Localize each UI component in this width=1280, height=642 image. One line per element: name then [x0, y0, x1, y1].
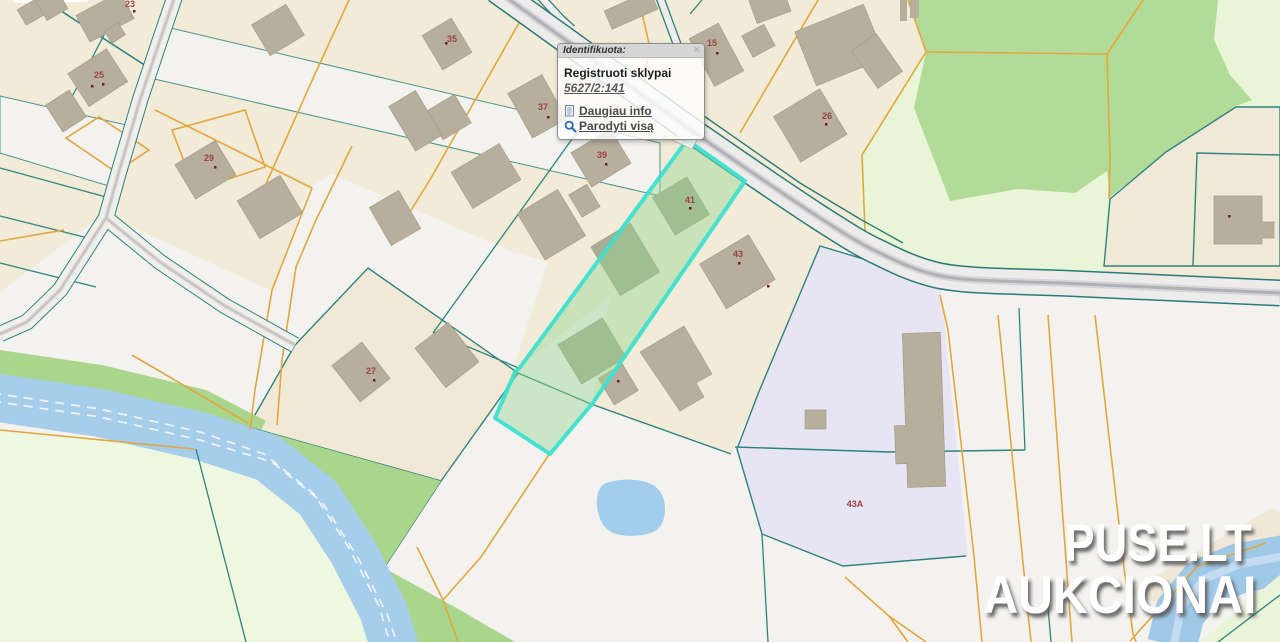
svg-text:27: 27 [366, 366, 376, 376]
svg-text:37: 37 [538, 102, 548, 112]
svg-text:26: 26 [822, 111, 832, 121]
svg-text:35: 35 [447, 34, 457, 44]
svg-text:43A: 43A [847, 499, 864, 509]
svg-text:25: 25 [94, 70, 104, 80]
svg-text:23: 23 [125, 0, 135, 9]
svg-text:43: 43 [733, 249, 743, 259]
svg-text:29: 29 [204, 153, 214, 163]
svg-text:39: 39 [597, 150, 607, 160]
svg-text:41: 41 [685, 195, 695, 205]
svg-text:15: 15 [707, 38, 717, 48]
